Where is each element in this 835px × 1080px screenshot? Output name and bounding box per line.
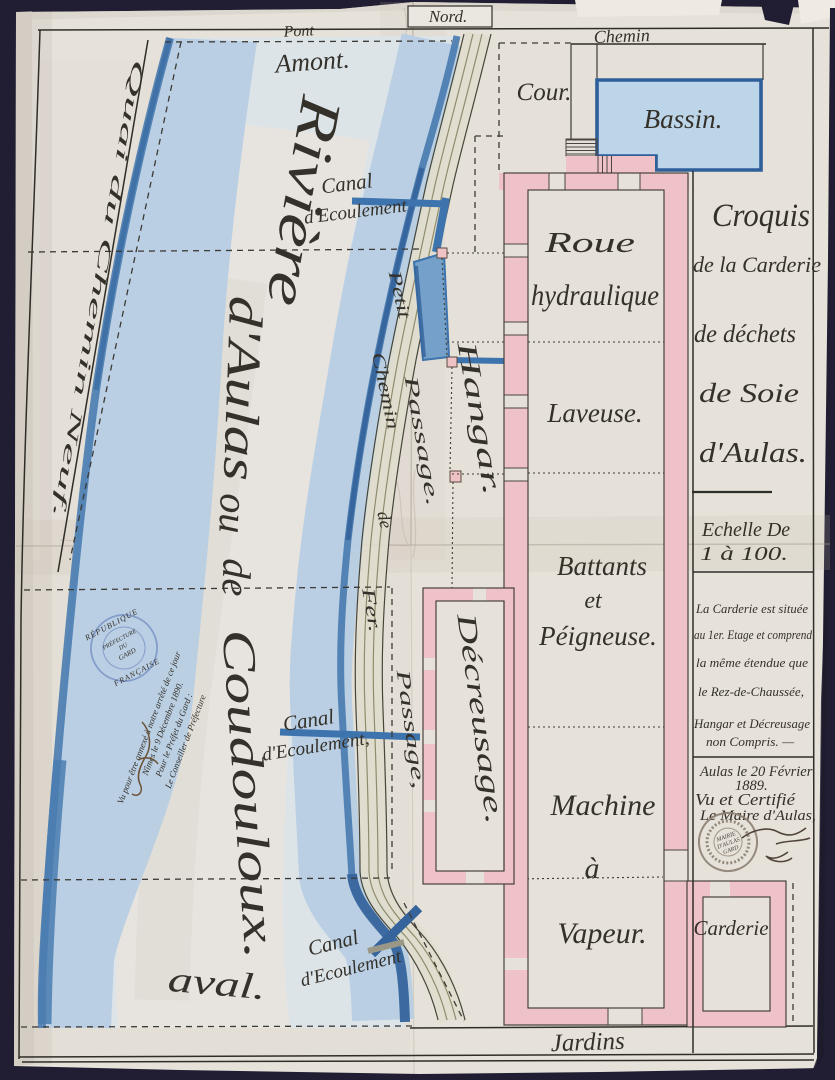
svg-text:Machine: Machine — [550, 789, 656, 822]
svg-text:Roue: Roue — [543, 228, 635, 259]
svg-text:Vapeur.: Vapeur. — [557, 917, 646, 950]
svg-text:le Rez-de-Chaussée,: le Rez-de-Chaussée, — [698, 684, 804, 699]
svg-text:au 1er. Etage et comprend: au 1er. Etage et comprend — [694, 627, 812, 642]
svg-text:Chemin: Chemin — [593, 25, 650, 47]
svg-text:La Carderie est située: La Carderie est située — [695, 601, 808, 616]
svg-text:Péigneuse.: Péigneuse. — [538, 621, 657, 651]
svg-text:de Soie: de Soie — [699, 378, 799, 408]
svg-text:Croquis: Croquis — [712, 198, 810, 234]
svg-text:hydraulique: hydraulique — [531, 279, 659, 312]
svg-text:1 à 100.: 1 à 100. — [700, 543, 788, 565]
svg-text:de: de — [213, 558, 259, 597]
svg-text:Echelle De: Echelle De — [701, 519, 790, 541]
svg-text:Pont: Pont — [282, 22, 315, 41]
svg-text:Carderie: Carderie — [693, 916, 768, 940]
svg-text:Battants: Battants — [557, 551, 647, 581]
svg-text:Jardins: Jardins — [550, 1028, 625, 1058]
svg-text:de la Carderie: de la Carderie — [693, 252, 821, 277]
svg-text:à: à — [585, 852, 600, 885]
svg-text:de déchets: de déchets — [694, 321, 796, 348]
svg-text:Hangar et Décreusage: Hangar et Décreusage — [693, 716, 810, 731]
svg-text:Cour.: Cour. — [517, 79, 572, 106]
svg-text:Amont.: Amont. — [272, 44, 350, 78]
svg-text:et: et — [584, 588, 603, 614]
svg-text:non Compris. —: non Compris. — — [706, 734, 794, 749]
svg-text:Vu et Certifié: Vu et Certifié — [695, 790, 797, 809]
svg-text:Laveuse.: Laveuse. — [546, 398, 642, 428]
svg-text:Bassin.: Bassin. — [644, 104, 723, 134]
svg-text:ou: ou — [210, 493, 256, 535]
svg-text:d'Aulas.: d'Aulas. — [699, 437, 807, 469]
svg-text:d'Aulas: d'Aulas — [213, 295, 272, 482]
svg-text:aval.: aval. — [166, 959, 267, 1007]
svg-text:la même étendue que: la même étendue que — [696, 655, 808, 670]
svg-text:Nord.: Nord. — [428, 7, 468, 26]
